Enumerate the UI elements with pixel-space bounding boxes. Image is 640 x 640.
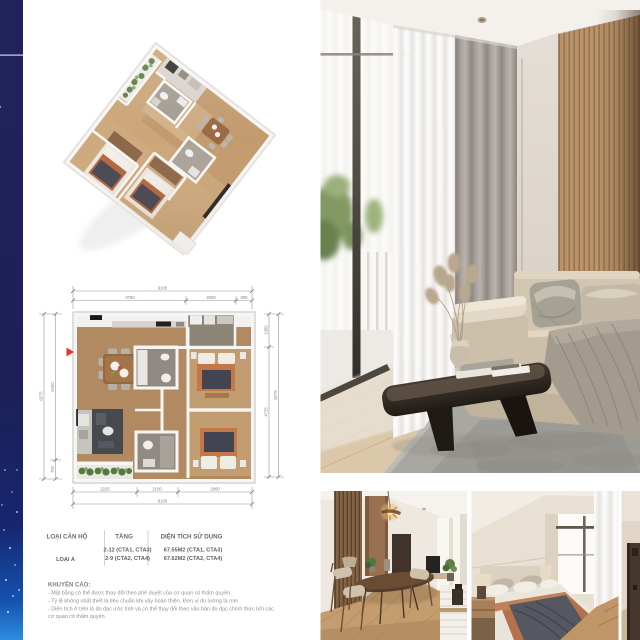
svg-text:LOẠI CĂN HỘ: LOẠI CĂN HỘ [47,533,88,541]
svg-text:6075: 6075 [273,390,278,400]
svg-text:800: 800 [241,295,249,300]
svg-text:67.55M2 (CTA1, CTA3): 67.55M2 (CTA1, CTA3) [164,548,223,554]
svg-text:2-12 (CTA1, CTA3): 2-12 (CTA1, CTA3) [104,548,152,554]
svg-text:1350: 1350 [264,325,269,335]
svg-text:- Diện tích ở trên là đo đạc ư: - Diện tích ở trên là đo đạc ước tính và… [48,606,274,613]
svg-text:- Tỷ lệ không nhất thiết là ti: - Tỷ lệ không nhất thiết là tiêu chuẩn k… [48,598,239,605]
svg-text:cơ quan có thẩm quyền.: cơ quan có thẩm quyền. [48,613,106,620]
svg-text:6100: 6100 [158,498,168,503]
svg-text:700: 700 [50,465,55,473]
svg-text:4725: 4725 [264,407,269,417]
svg-text:DIỆN TÍCH SỬ DỤNG: DIỆN TÍCH SỬ DỤNG [161,533,223,541]
svg-text:6075: 6075 [39,391,44,401]
svg-text:2100: 2100 [152,486,162,491]
svg-text:67.62M2 (CTA2, CTA4): 67.62M2 (CTA2, CTA4) [164,556,223,562]
svg-text:TẦNG: TẦNG [115,534,133,541]
svg-text:2800: 2800 [210,486,220,491]
svg-text:2000: 2000 [206,295,216,300]
svg-text:KHUYẾN CÁO:: KHUYẾN CÁO: [48,582,90,589]
svg-text:LOẠI A: LOẠI A [56,557,75,563]
svg-text:6100: 6100 [158,285,168,290]
svg-text:2-9 (CTA2, CTA4): 2-9 (CTA2, CTA4) [105,556,150,562]
svg-text:3750: 3750 [125,295,135,300]
svg-text:5450: 5450 [50,382,55,392]
svg-text:2225: 2225 [100,486,110,491]
svg-text:- Mặt bằng có thể được thay đổ: - Mặt bằng có thể được thay đổi theo phê… [48,590,230,597]
